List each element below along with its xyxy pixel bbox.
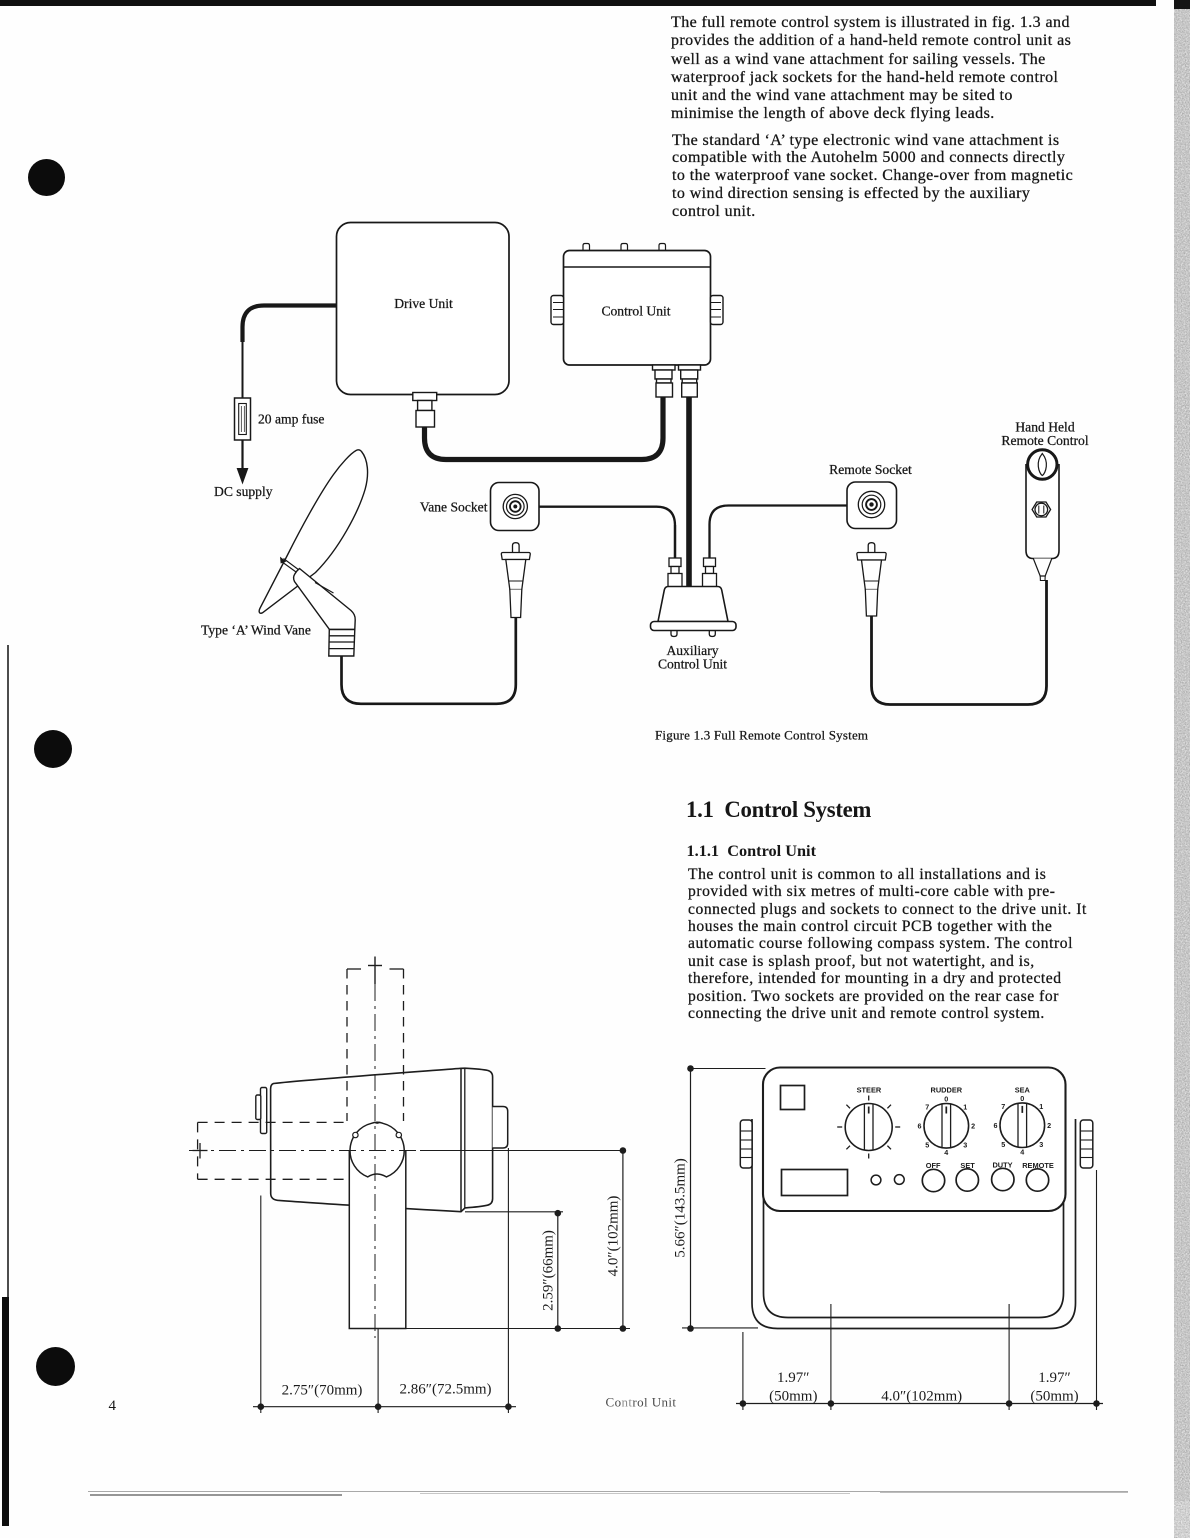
svg-text:(50mm): (50mm) xyxy=(769,1389,817,1405)
svg-text:6: 6 xyxy=(918,1121,922,1130)
svg-text:(50mm): (50mm) xyxy=(1030,1389,1078,1405)
svg-text:Control Unit: Control Unit xyxy=(658,657,727,672)
svg-text:REMOTE: REMOTE xyxy=(1022,1161,1054,1170)
svg-text:7: 7 xyxy=(925,1102,929,1111)
svg-text:5: 5 xyxy=(925,1140,929,1149)
svg-text:1.97″: 1.97″ xyxy=(1038,1370,1071,1386)
svg-text:0: 0 xyxy=(1020,1094,1024,1103)
svg-text:5.66″(143.5mm): 5.66″(143.5mm) xyxy=(673,1158,689,1258)
svg-text:Vane Socket: Vane Socket xyxy=(420,500,488,515)
svg-text:2.59″(66mm): 2.59″(66mm) xyxy=(541,1230,557,1311)
svg-text:Remote Control: Remote Control xyxy=(1001,433,1088,448)
svg-text:2: 2 xyxy=(1047,1121,1051,1130)
svg-text:0: 0 xyxy=(944,1095,948,1104)
svg-text:2.75″(70mm): 2.75″(70mm) xyxy=(282,1383,363,1399)
svg-text:SET: SET xyxy=(960,1161,975,1170)
svg-text:Remote Socket: Remote Socket xyxy=(829,462,912,477)
svg-text:Control Unit: Control Unit xyxy=(606,1395,677,1410)
svg-text:Figure 1.3 Full Remote Control: Figure 1.3 Full Remote Control System xyxy=(655,728,868,743)
svg-text:3: 3 xyxy=(963,1140,967,1149)
svg-text:4.0″(102mm): 4.0″(102mm) xyxy=(606,1196,622,1277)
svg-text:DC supply: DC supply xyxy=(214,484,273,499)
svg-text:Control Unit: Control Unit xyxy=(601,304,670,319)
svg-text:OFF: OFF xyxy=(926,1161,941,1170)
svg-text:2: 2 xyxy=(971,1121,975,1130)
svg-text:5: 5 xyxy=(1001,1140,1005,1149)
svg-text:6: 6 xyxy=(994,1121,998,1130)
svg-text:1: 1 xyxy=(963,1102,967,1111)
svg-text:Drive Unit: Drive Unit xyxy=(394,296,453,311)
svg-text:7: 7 xyxy=(1001,1102,1005,1111)
svg-text:4.0″(102mm): 4.0″(102mm) xyxy=(881,1389,962,1405)
svg-text:2.86″(72.5mm): 2.86″(72.5mm) xyxy=(399,1382,491,1398)
svg-text:Type ‘A’ Wind Vane: Type ‘A’ Wind Vane xyxy=(201,623,311,638)
svg-text:STEER: STEER xyxy=(857,1086,882,1095)
svg-text:DUTY: DUTY xyxy=(992,1161,1012,1170)
svg-text:4: 4 xyxy=(1020,1148,1024,1157)
svg-text:3: 3 xyxy=(1039,1140,1043,1149)
svg-text:1.97″: 1.97″ xyxy=(777,1370,810,1386)
svg-text:RUDDER: RUDDER xyxy=(930,1086,962,1095)
svg-text:4: 4 xyxy=(944,1148,948,1157)
svg-text:1: 1 xyxy=(1039,1102,1043,1111)
svg-text:20 amp fuse: 20 amp fuse xyxy=(258,412,324,427)
svg-text:SEA: SEA xyxy=(1015,1086,1031,1095)
